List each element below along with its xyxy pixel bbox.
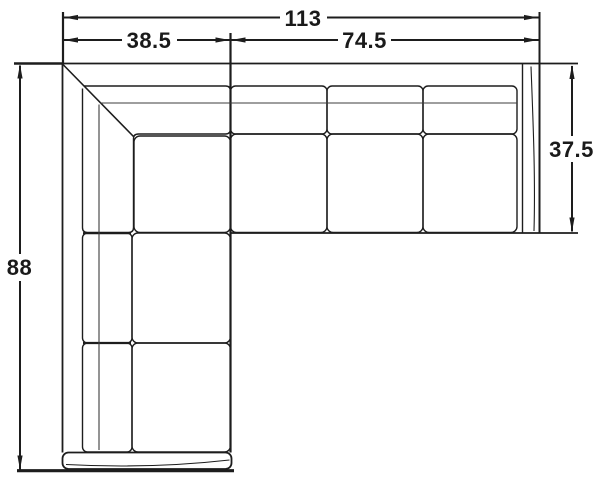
chaise-back-cushion bbox=[83, 343, 133, 452]
dim-label-chaise-depth: 88 bbox=[7, 255, 32, 280]
right-arm bbox=[523, 64, 535, 233]
dim-label-overall-width: 113 bbox=[285, 6, 322, 31]
cushions bbox=[83, 86, 518, 452]
arrow-down-icon bbox=[569, 218, 574, 232]
dimension-arrowheads bbox=[17, 15, 574, 470]
bottom-arm bbox=[63, 453, 232, 470]
corner-miter-line bbox=[63, 65, 134, 137]
arrow-up-icon bbox=[569, 65, 574, 79]
dim-label-sofa-depth: 37.5 bbox=[549, 137, 594, 162]
arrow-right-icon bbox=[524, 37, 538, 42]
chaise-back-cushion bbox=[83, 233, 133, 343]
seat-cushion bbox=[423, 134, 517, 233]
chaise-seat-cushion bbox=[132, 233, 231, 343]
piping-lines bbox=[99, 103, 517, 450]
bottom-arm-panel bbox=[63, 453, 232, 470]
dim-label-sofa-width: 74.5 bbox=[342, 28, 387, 53]
arrow-down-icon bbox=[17, 456, 22, 470]
arrow-right-icon bbox=[216, 37, 230, 42]
corner-seat-cushion bbox=[134, 136, 231, 233]
chaise-seat-cushion bbox=[132, 343, 231, 452]
arrow-up-icon bbox=[17, 65, 22, 79]
arrow-right-icon bbox=[524, 15, 538, 20]
back-cushion bbox=[327, 86, 423, 134]
seat-cushion bbox=[327, 134, 423, 233]
back-cushion bbox=[231, 86, 328, 134]
sectional-sofa-top-view: 113 38.5 74.5 88 37.5 bbox=[0, 0, 600, 482]
right-arm-curve bbox=[531, 67, 534, 232]
arrow-left-icon bbox=[232, 37, 246, 42]
dim-label-chaise-width: 38.5 bbox=[127, 28, 172, 53]
arrow-left-icon bbox=[64, 37, 78, 42]
seat-cushion bbox=[231, 134, 328, 233]
furniture-dimension-diagram: 113 38.5 74.5 88 37.5 bbox=[0, 0, 600, 482]
arrow-left-icon bbox=[64, 15, 78, 20]
back-cushion bbox=[423, 86, 517, 134]
